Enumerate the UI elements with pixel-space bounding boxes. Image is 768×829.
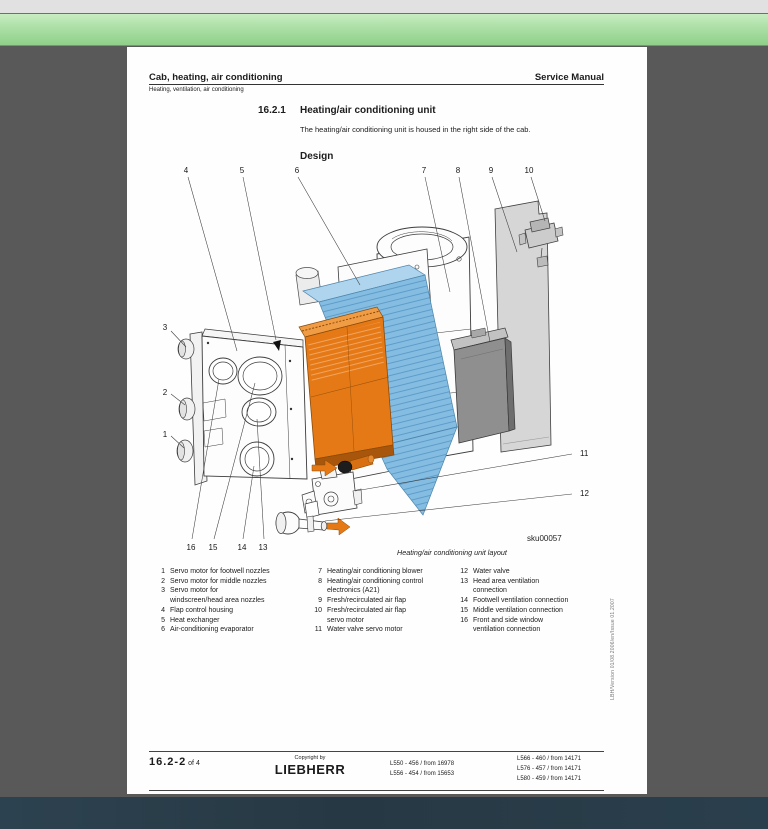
copyright-label: Copyright by: [270, 755, 350, 761]
legend-item: 7Heating/air conditioning blower: [310, 567, 452, 577]
legend-item-text: Heating/air conditioning control electro…: [327, 577, 423, 596]
footer-models-left: L550 - 456 / from 16978 L556 - 454 / fro…: [390, 759, 454, 779]
legend-item-text: Servo motor for footwell nozzles: [170, 567, 270, 577]
figure-code: sku00057: [527, 534, 562, 543]
callout-5: 5: [240, 166, 245, 175]
page-number: 16.2-2: [149, 756, 186, 768]
taskbar: [0, 797, 768, 829]
chapter-subtitle: Heating, ventilation, air conditioning: [149, 87, 244, 93]
legend-item-number: 3: [153, 586, 165, 605]
footer-bottom-rule: [149, 790, 604, 791]
legend-item: 4Flap control housing: [153, 606, 303, 616]
legend-item: 5Heat exchanger: [153, 616, 303, 626]
chapter-title: Cab, heating, air conditioning: [149, 72, 283, 83]
control-electronics: [451, 328, 515, 443]
version-side-note: LBH/Version 01/08.2006/en/Issue 01.2007: [610, 589, 618, 709]
callout-7: 7: [422, 166, 427, 175]
legend-item-number: 1: [153, 567, 165, 577]
legend-item-text: Fresh/recirculated air flap servo motor: [327, 606, 406, 625]
legend-column-1: 1Servo motor for footwell nozzles 2Servo…: [153, 567, 303, 635]
viewer-toolbar: [0, 14, 768, 46]
heat-exchanger: [299, 307, 394, 473]
legend-item-number: 9: [310, 596, 322, 606]
legend-item-text: Air-conditioning evaporator: [170, 625, 254, 635]
legend-item-number: 14: [456, 596, 468, 606]
legend-item: 6Air-conditioning evaporator: [153, 625, 303, 635]
liebherr-logo: LIEBHERR: [270, 762, 350, 777]
legend-item-number: 4: [153, 606, 165, 616]
legend-item-number: 2: [153, 577, 165, 587]
legend-item-number: 16: [456, 616, 468, 635]
callout-16: 16: [187, 543, 196, 552]
legend-item: 1Servo motor for footwell nozzles: [153, 567, 303, 577]
figure-caption: Heating/air conditioning unit layout: [300, 548, 604, 557]
callout-9: 9: [489, 166, 494, 175]
legend-item: 9Fresh/recirculated air flap: [310, 596, 452, 606]
callout-13: 13: [259, 543, 268, 552]
section-number: 16.2.1: [258, 105, 286, 116]
legend-item: 3Servo motor for windscreen/head area no…: [153, 586, 303, 605]
legend-item-text: Heat exchanger: [170, 616, 219, 626]
legend-column-3: 12Water valve 13Head area ventilation co…: [456, 567, 601, 635]
legend-item-text: Servo motor for windscreen/head area noz…: [170, 586, 265, 605]
legend-item-text: Fresh/recirculated air flap: [327, 596, 406, 606]
callout-12: 12: [580, 489, 589, 498]
legend-item-text: Flap control housing: [170, 606, 233, 616]
callout-2: 2: [163, 388, 168, 397]
legend-item: 10Fresh/recirculated air flap servo moto…: [310, 606, 452, 625]
callout-1: 1: [163, 430, 168, 439]
legend-item-text: Footwell ventilation connection: [473, 596, 568, 606]
header-rule: [149, 84, 604, 85]
legend-item-number: 8: [310, 577, 322, 596]
callout-11: 11: [580, 449, 589, 458]
callout-10: 10: [525, 166, 534, 175]
footer-brand-block: Copyright by LIEBHERR: [270, 755, 350, 777]
legend-item-number: 6: [153, 625, 165, 635]
model-line: L566 - 460 / from 14171: [517, 754, 581, 764]
footer-rule: [149, 751, 604, 752]
page-of: of 4: [188, 760, 200, 767]
section-intro-text: The heating/air conditioning unit is hou…: [300, 125, 531, 134]
flap-control-housing: [177, 329, 307, 485]
legend-item-text: Heating/air conditioning blower: [327, 567, 423, 577]
legend-item: 16Front and side window ventilation conn…: [456, 616, 601, 635]
manual-name: Service Manual: [535, 72, 604, 83]
legend-item-number: 15: [456, 606, 468, 616]
callout-3: 3: [163, 323, 168, 332]
legend-item-number: 10: [310, 606, 322, 625]
legend-item-number: 5: [153, 616, 165, 626]
legend-item-text: Middle ventilation connection: [473, 606, 563, 616]
application-window: Cab, heating, air conditioning Service M…: [0, 0, 768, 829]
callout-6: 6: [295, 166, 300, 175]
legend-item-text: Front and side window ventilation connec…: [473, 616, 543, 635]
callout-15: 15: [209, 543, 218, 552]
model-line: L576 - 457 / from 14171: [517, 764, 581, 774]
legend-item-text: Water valve servo motor: [327, 625, 403, 635]
legend-column-2: 7Heating/air conditioning blower 8Heatin…: [310, 567, 452, 635]
legend-item-text: Servo motor for middle nozzles: [170, 577, 266, 587]
legend-item: 2Servo motor for middle nozzles: [153, 577, 303, 587]
callout-4: 4: [184, 166, 189, 175]
window-title-strip: [0, 0, 768, 14]
manual-page: Cab, heating, air conditioning Service M…: [127, 47, 647, 794]
legend-item-number: 13: [456, 577, 468, 596]
footer-page-number: 16.2-2 of 4: [149, 756, 200, 768]
legend-item: 8Heating/air conditioning control electr…: [310, 577, 452, 596]
footer-models-right: L566 - 460 / from 14171 L576 - 457 / fro…: [517, 754, 581, 784]
legend-item: 13Head area ventilation connection: [456, 577, 601, 596]
legend-item-text: Head area ventilation connection: [473, 577, 539, 596]
callout-8: 8: [456, 166, 461, 175]
model-line: L580 - 459 / from 14171: [517, 774, 581, 784]
model-line: L550 - 456 / from 16978: [390, 759, 454, 769]
legend-item: 14Footwell ventilation connection: [456, 596, 601, 606]
callout-14: 14: [238, 543, 247, 552]
section-title: Heating/air conditioning unit: [300, 105, 436, 116]
legend-item-number: 11: [310, 625, 322, 635]
legend-item-number: 12: [456, 567, 468, 577]
model-line: L556 - 454 / from 15653: [390, 769, 454, 779]
legend-item: 12Water valve: [456, 567, 601, 577]
document-canvas[interactable]: Cab, heating, air conditioning Service M…: [0, 46, 768, 797]
legend-item-text: Water valve: [473, 567, 510, 577]
legend-item: 15Middle ventilation connection: [456, 606, 601, 616]
exploded-view-diagram: 4 5 6 7 8 9 10 3 2 1 16 15 14 13 11 12: [155, 159, 610, 554]
legend-item: 11Water valve servo motor: [310, 625, 452, 635]
legend-item-number: 7: [310, 567, 322, 577]
